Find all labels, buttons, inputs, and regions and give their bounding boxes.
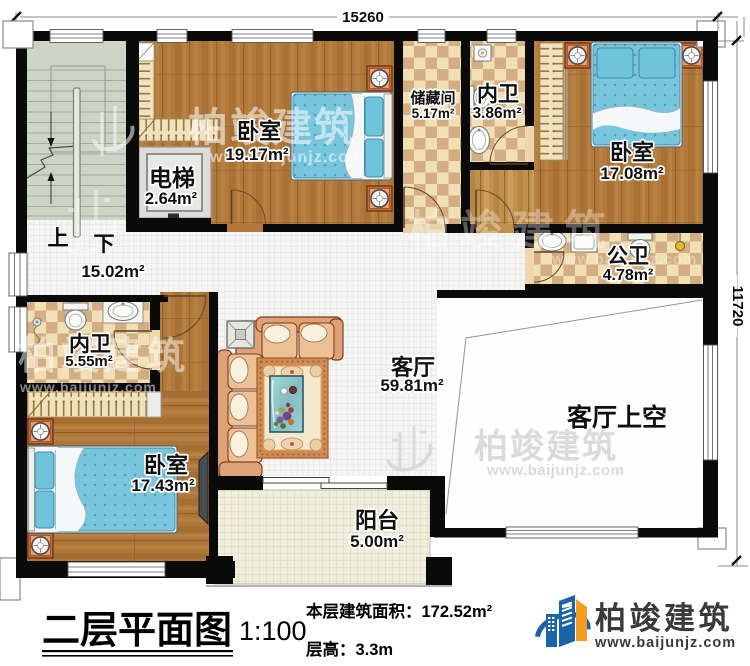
svg-text:5.55m²: 5.55m²: [65, 353, 113, 370]
svg-text:卧室: 卧室: [610, 140, 654, 165]
svg-text:客厅上空: 客厅上空: [567, 403, 667, 432]
svg-text:17.43m²: 17.43m²: [131, 476, 195, 495]
svg-text:3.86m²: 3.86m²: [472, 105, 521, 122]
svg-text:1:100: 1:100: [239, 616, 307, 646]
svg-text:下: 下: [94, 233, 115, 256]
svg-text:5.00m²: 5.00m²: [350, 532, 404, 551]
svg-text:本层建筑面积：172.52m²: 本层建筑面积：172.52m²: [306, 601, 493, 621]
svg-text:59.81m²: 59.81m²: [380, 376, 444, 395]
svg-text:卧室: 卧室: [237, 119, 281, 144]
svg-text:内卫: 内卫: [477, 82, 519, 106]
svg-text:公卫: 公卫: [607, 245, 649, 268]
svg-text:15260: 15260: [342, 9, 384, 26]
svg-text:储藏间: 储藏间: [410, 89, 455, 107]
svg-text:5.17m²: 5.17m²: [412, 106, 455, 121]
svg-text:柏竣建筑: 柏竣建筑: [595, 601, 733, 636]
svg-text:电梯: 电梯: [149, 165, 195, 191]
svg-text:柏竣建筑: 柏竣建筑: [408, 207, 616, 254]
svg-text:卧室: 卧室: [144, 453, 188, 478]
svg-text:阳台: 阳台: [355, 508, 399, 533]
svg-text:www.baijunjz.com: www.baijunjz.com: [486, 462, 624, 479]
svg-text:19.17m²: 19.17m²: [225, 145, 289, 164]
svg-text:上: 上: [48, 227, 69, 250]
svg-text:11720: 11720: [729, 286, 746, 327]
svg-text:层高：3.3m: 层高：3.3m: [306, 639, 393, 659]
svg-text:www.baijunjz.com: www.baijunjz.com: [594, 635, 736, 651]
svg-text:15.02m²: 15.02m²: [81, 262, 145, 281]
svg-text:柏竣建筑: 柏竣建筑: [474, 427, 618, 466]
svg-text:4.78m²: 4.78m²: [603, 267, 654, 284]
svg-text:2.64m²: 2.64m²: [145, 190, 198, 208]
svg-text:17.08m²: 17.08m²: [600, 164, 664, 183]
svg-text:www.baijunjz.com: www.baijunjz.com: [19, 379, 157, 395]
svg-text:二层平面图: 二层平面图: [42, 610, 232, 652]
